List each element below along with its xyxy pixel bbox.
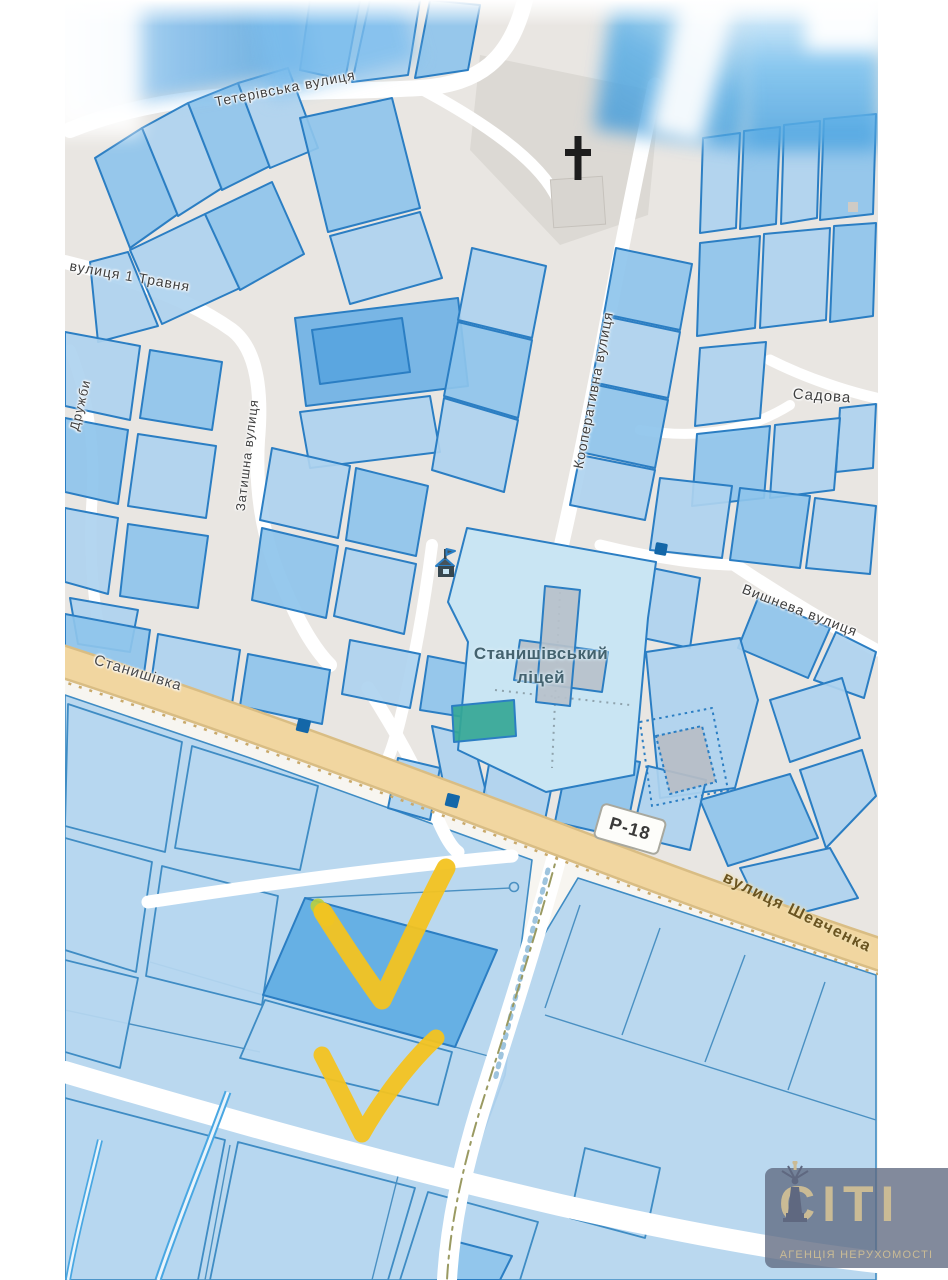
watermark-subtitle: АГЕНЦІЯ НЕРУХОМОСТІ: [780, 1249, 934, 1261]
bus-stop-marker: [654, 542, 668, 556]
poi-label-lyceum-line1: Станишівський: [474, 644, 608, 664]
map-graphics: [65, 0, 878, 1280]
poi-label-lyceum-line2: ліцей: [517, 668, 565, 688]
road-badge-text: Р-18: [607, 813, 653, 845]
sports-field: [452, 700, 516, 742]
small-building-icon: [848, 202, 858, 212]
watermark-logo-text: C ITI: [779, 1174, 901, 1234]
statue-of-liberty-icon: [776, 1161, 814, 1229]
watermark-logo: C ITI АГЕНЦІЯ НЕРУХОМОСТІ: [765, 1168, 948, 1268]
watermark-letter-c: C: [779, 1174, 822, 1234]
map-canvas: Тетерівська вулиця вулиця 1 Травня Коопе…: [65, 0, 878, 1280]
page: { "labels": { "teterivska": "Тетерівська…: [0, 0, 948, 1280]
